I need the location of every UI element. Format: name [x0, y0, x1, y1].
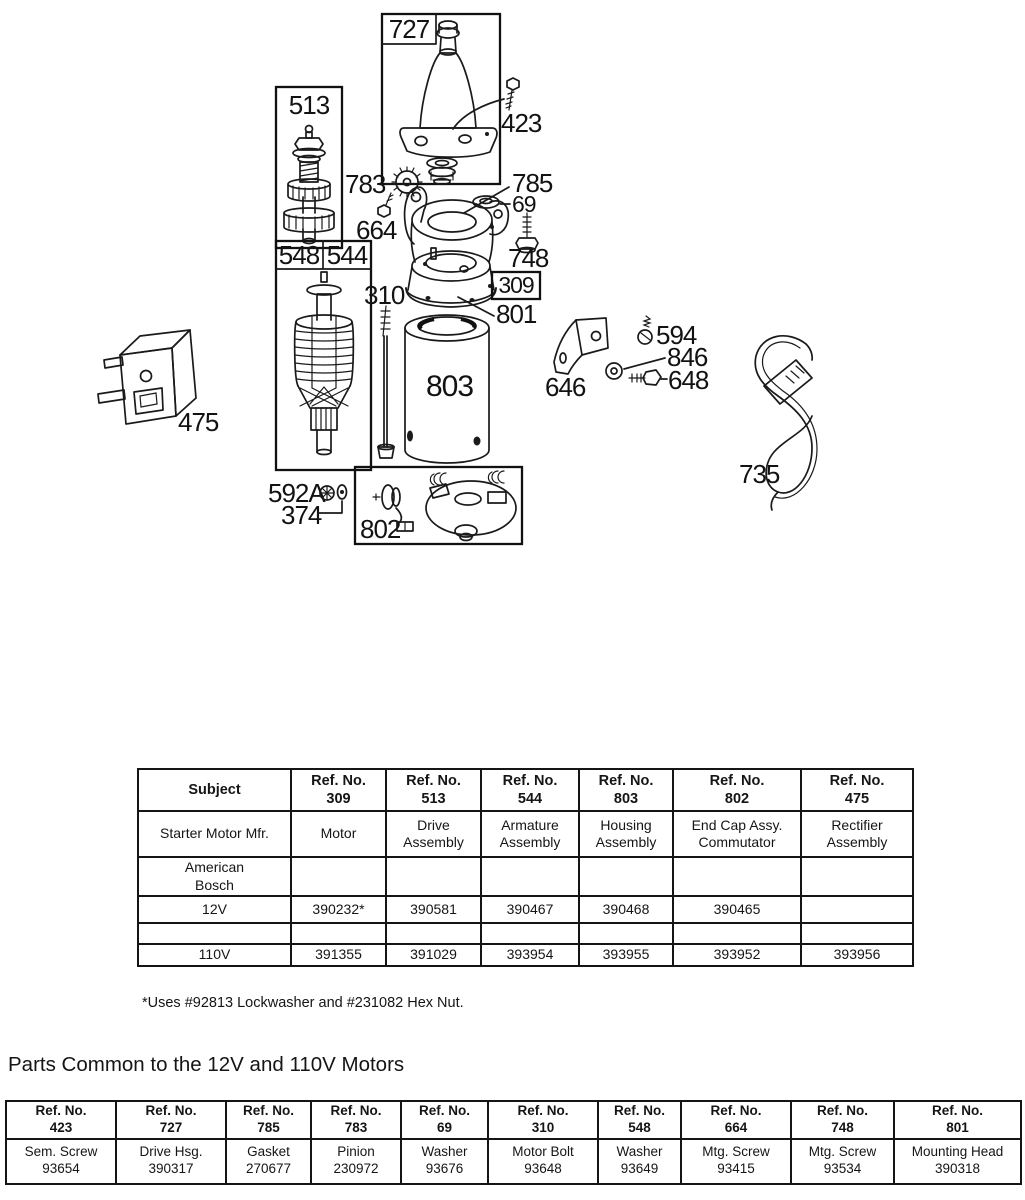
col-header-664: Ref. No. 664	[681, 1101, 791, 1139]
table-cell: Pinion 230972	[311, 1139, 401, 1184]
armature-assembly-544: 548 544	[276, 240, 371, 470]
callout-310: 310	[364, 280, 405, 310]
table-cell: Armature Assembly	[481, 811, 579, 857]
table-cell	[481, 923, 579, 944]
callout-548: 548	[279, 240, 320, 270]
col-header-548: Ref. No. 548	[598, 1101, 681, 1139]
table-cell	[291, 923, 386, 944]
table-cell: 393952	[673, 944, 801, 966]
col-header-785: Ref. No. 785	[226, 1101, 311, 1139]
table-cell	[579, 923, 673, 944]
table-cell: 390468	[579, 896, 673, 923]
table-cell	[801, 857, 913, 896]
callout-727: 727	[389, 14, 430, 44]
bolt-648: 648	[629, 365, 709, 395]
table-cell: 390232*	[291, 896, 386, 923]
table-cell	[579, 857, 673, 896]
rectifier-assembly-475: 475	[98, 330, 219, 437]
table-cell	[801, 896, 913, 923]
motor-label-309: 309	[492, 272, 540, 299]
col-header-748: Ref. No. 748	[791, 1101, 894, 1139]
table-cell	[386, 923, 481, 944]
table-cell: Motor	[291, 811, 386, 857]
col-header-783: Ref. No. 783	[311, 1101, 401, 1139]
table-cell: 390465	[673, 896, 801, 923]
table-cell: Sem. Screw 93654	[6, 1139, 116, 1184]
col-header-803: Ref. No. 803	[579, 769, 673, 811]
callout-735: 735	[739, 459, 780, 489]
mtg-screw-748: 748	[508, 213, 549, 273]
col-header-801: Ref. No. 801	[894, 1101, 1021, 1139]
table-cell: 391029	[386, 944, 481, 966]
table-cell	[291, 857, 386, 896]
common-parts-table: Ref. No. 423 Ref. No. 727 Ref. No. 785 R…	[5, 1100, 1022, 1185]
table-cell: Motor Bolt 93648	[488, 1139, 598, 1184]
bracket-646: 646	[545, 318, 608, 402]
housing-assembly-803: 803	[405, 315, 489, 463]
footnote: *Uses #92813 Lockwasher and #231082 Hex …	[142, 995, 464, 1011]
table-cell: Starter Motor Mfr.	[138, 811, 291, 857]
callout-544: 544	[327, 240, 368, 270]
drive-gear-assembly-513: 513	[276, 87, 342, 248]
table-cell: Rectifier Assembly	[801, 811, 913, 857]
callout-513: 513	[289, 90, 330, 120]
table-cell	[673, 857, 801, 896]
callout-423: 423	[501, 108, 542, 138]
table-cell: Mtg. Screw 93415	[681, 1139, 791, 1184]
pinion-783: 783	[345, 167, 422, 199]
table-cell: Washer 93676	[401, 1139, 488, 1184]
col-header-802: Ref. No. 802	[673, 769, 801, 811]
end-cap-assembly-802: 802	[355, 467, 522, 544]
callout-69: 69	[512, 191, 536, 217]
callout-648: 648	[668, 365, 709, 395]
col-header-310: Ref. No. 310	[488, 1101, 598, 1139]
washer-374: 374	[281, 500, 342, 530]
callout-748: 748	[508, 243, 549, 273]
table-cell: Mtg. Screw 93534	[791, 1139, 894, 1184]
cable-assembly-735: 735	[739, 336, 817, 510]
table-cell	[138, 923, 291, 944]
table-cell: Drive Hsg. 390317	[116, 1139, 226, 1184]
col-header-423: Ref. No. 423	[6, 1101, 116, 1139]
callout-802: 802	[360, 514, 401, 544]
callout-309: 309	[498, 272, 534, 298]
callout-783: 783	[345, 169, 386, 199]
callout-803: 803	[426, 370, 473, 403]
sem-screw-423: 423	[453, 78, 542, 138]
mtg-screw-664: 664	[356, 193, 397, 245]
col-header-475: Ref. No. 475	[801, 769, 913, 811]
table-cell: 393954	[481, 944, 579, 966]
table-cell: 391355	[291, 944, 386, 966]
table-cell	[386, 857, 481, 896]
col-header-727: Ref. No. 727	[116, 1101, 226, 1139]
callout-646: 646	[545, 372, 586, 402]
drive-housing-727: 727	[382, 14, 500, 184]
table-cell: American Bosch	[138, 857, 291, 896]
table-cell: Housing Assembly	[579, 811, 673, 857]
table-cell: 393955	[579, 944, 673, 966]
col-header-69: Ref. No. 69	[401, 1101, 488, 1139]
common-parts-heading: Parts Common to the 12V and 110V Motors	[8, 1053, 404, 1077]
callout-801: 801	[496, 299, 537, 329]
callout-374: 374	[281, 500, 322, 530]
table-cell	[481, 857, 579, 896]
col-header-513: Ref. No. 513	[386, 769, 481, 811]
exploded-parts-diagram: 727 423 513	[0, 0, 1025, 760]
table-cell	[801, 923, 913, 944]
table-cell: 393956	[801, 944, 913, 966]
col-header-309: Ref. No. 309	[291, 769, 386, 811]
table-cell: 110V	[138, 944, 291, 966]
table-cell: 390581	[386, 896, 481, 923]
table-cell	[673, 923, 801, 944]
starter-motor-parts-table: Subject Ref. No. 309 Ref. No. 513 Ref. N…	[137, 768, 914, 967]
table-cell: End Cap Assy. Commutator	[673, 811, 801, 857]
col-header-544: Ref. No. 544	[481, 769, 579, 811]
table-cell: 390467	[481, 896, 579, 923]
table-cell: Mounting Head 390318	[894, 1139, 1021, 1184]
table-cell: Washer 93649	[598, 1139, 681, 1184]
table-cell: Drive Assembly	[386, 811, 481, 857]
parts-manual-page: 727 423 513	[0, 0, 1025, 1200]
callout-475: 475	[178, 407, 219, 437]
col-header-subject: Subject	[138, 769, 291, 811]
table-cell: Gasket 270677	[226, 1139, 311, 1184]
table-cell: 12V	[138, 896, 291, 923]
